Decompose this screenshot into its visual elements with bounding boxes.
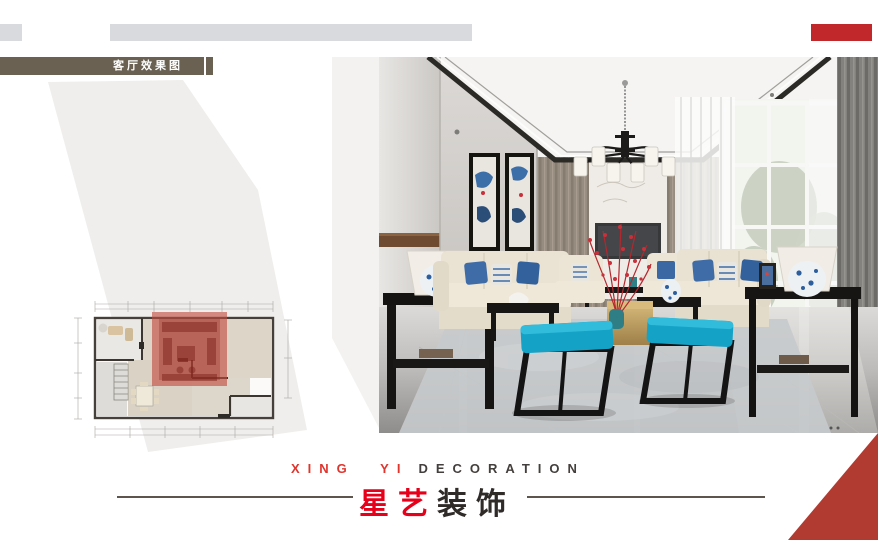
section-label-bar: 客厅效果图 [0, 57, 213, 75]
brand-chinese-red: 星艺 [359, 488, 437, 521]
brand-english-line: XING YIDECORATION [291, 461, 585, 476]
top-left-gray-bar [0, 24, 22, 41]
corner-triangle [788, 433, 878, 540]
presentation-page: 客厅效果图 [0, 0, 878, 540]
spotlight [455, 130, 460, 135]
framed-artwork-right [505, 153, 534, 251]
spotlight [770, 93, 774, 97]
photo-dot [830, 427, 833, 430]
footer-rule-left [117, 496, 353, 498]
brand-english-dark: DECORATION [418, 461, 584, 476]
brand-english-red: XING YI [291, 461, 408, 476]
top-center-gray-bar [110, 24, 472, 41]
floor-plan-drawing [70, 298, 300, 443]
section-label-text: 客厅效果图 [113, 60, 183, 72]
livingroom-rendering-photo [379, 57, 878, 433]
plan-livingroom-highlight [152, 312, 227, 386]
photo-dot [837, 427, 840, 430]
right-photo-frame [759, 263, 776, 289]
brand-chinese-dark: 装饰 [437, 488, 515, 521]
floor-plan [70, 298, 300, 443]
top-right-red-bar [811, 24, 872, 41]
framed-artwork-left [469, 153, 500, 251]
right-table-lamp [777, 247, 837, 297]
brand-chinese-line: 星艺装饰 [359, 479, 515, 523]
footer-rule-right [527, 496, 765, 498]
livingroom-scene [379, 57, 878, 433]
